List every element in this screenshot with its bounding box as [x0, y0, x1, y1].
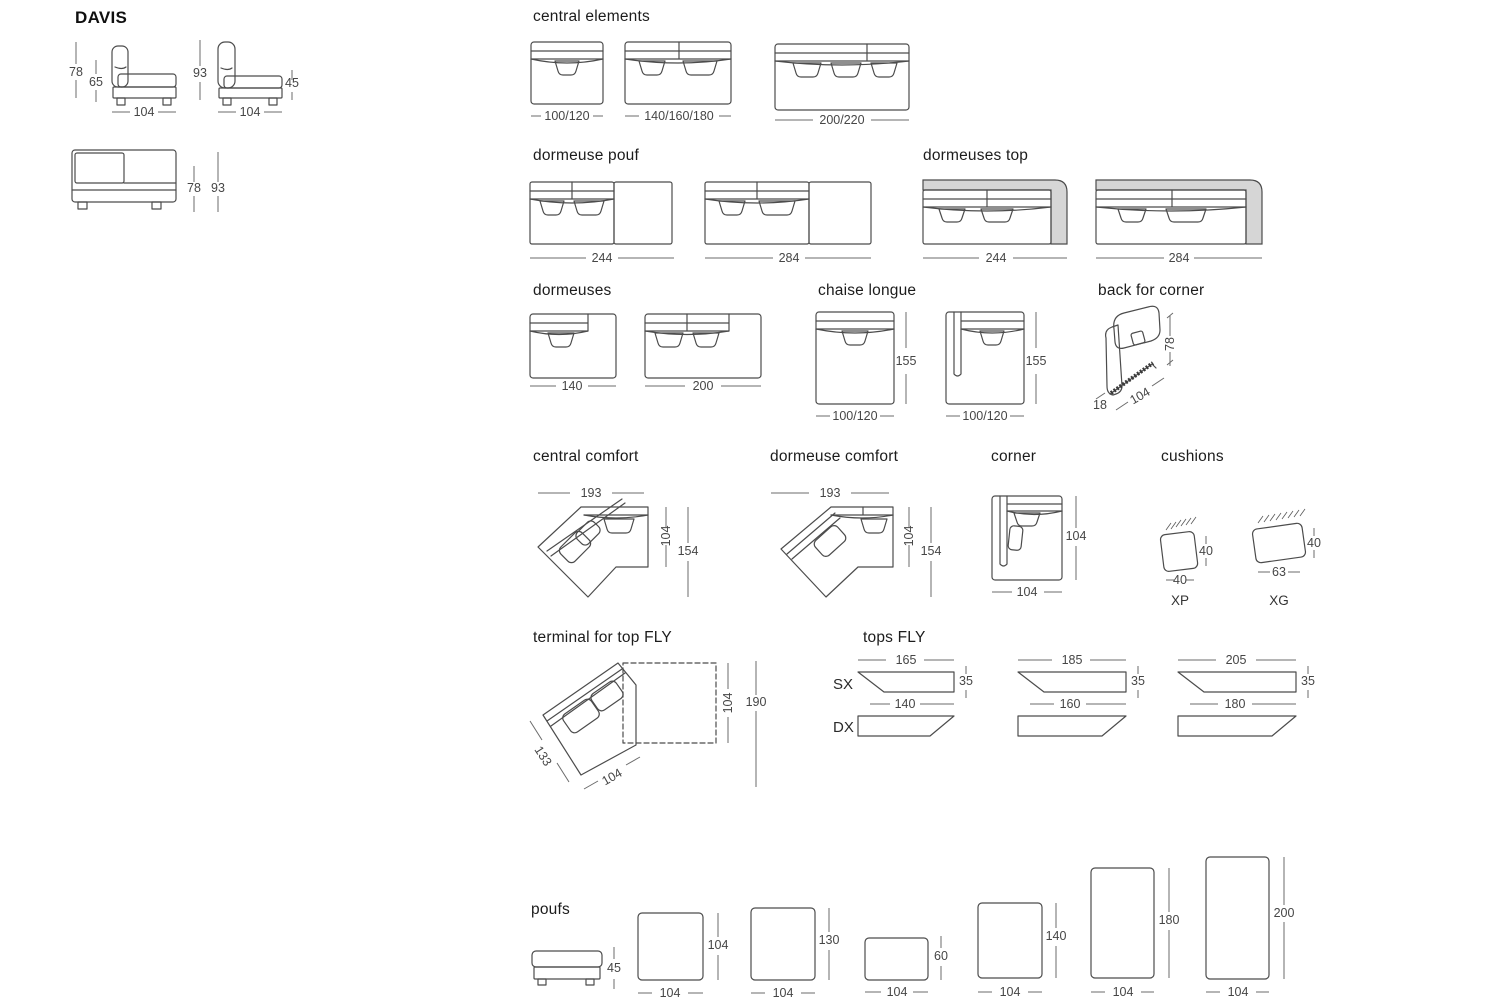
top-sx-outline — [1018, 672, 1126, 692]
dim-label: 100/120 — [832, 409, 877, 423]
dim-label: 104 — [660, 986, 681, 1000]
sofa-side-outline — [218, 42, 282, 105]
dim-label: 180 — [1159, 913, 1180, 927]
drawing-pouf-1: 104 104 — [630, 905, 735, 1003]
dim-label: 45 — [607, 961, 621, 975]
dim-label: 185 — [1062, 653, 1083, 667]
pouf-outline — [1091, 868, 1154, 978]
drawing-back-for-corner: 78 18 104 — [1088, 302, 1183, 417]
dim-label: 104 — [708, 938, 729, 952]
drawing-pouf-6: 200 104 — [1198, 850, 1303, 1000]
dim-label: 18 — [1093, 398, 1107, 412]
drawing-module-front-view: 78 93 — [66, 144, 241, 220]
dim-label: 104 — [659, 526, 673, 547]
cushion-hatch — [1166, 517, 1196, 530]
section-title-chaise-longue: chaise longue — [818, 282, 916, 300]
drawing-dormeuse-top-1: 244 — [921, 178, 1071, 268]
top-dx-outline — [1178, 716, 1296, 736]
drawing-chaise-longue-2: 155 100/120 — [938, 308, 1056, 426]
dim-label: 104 — [134, 105, 155, 119]
dim-label: 100/120 — [962, 409, 1007, 423]
drawing-dormeuse-2: 200 — [643, 310, 765, 394]
section-title-tops-fly: tops FLY — [863, 629, 925, 647]
dim-label: 45 — [285, 76, 299, 90]
drawing-tops-fly-3: 205 35 180 — [1176, 648, 1336, 748]
dim-label: 104 — [1066, 529, 1087, 543]
drawing-pouf-5: 180 104 — [1083, 862, 1188, 1002]
dim-label: 130 — [819, 933, 840, 947]
dim-label: 63 — [1272, 565, 1286, 579]
drawing-central-element-1: 100/120 — [529, 38, 607, 126]
spec-sheet: DAVIS 78 65 104 — [0, 0, 1504, 1003]
sofa-front-outline — [72, 150, 176, 209]
drawing-pouf-3: 60 104 — [857, 930, 962, 1003]
module-outline — [625, 42, 731, 104]
dim-label: 154 — [678, 544, 699, 558]
module-outline — [538, 499, 648, 597]
section-title-dormeuse-comfort: dormeuse comfort — [770, 448, 898, 466]
section-title-cushions: cushions — [1161, 448, 1224, 466]
top-dx-outline — [858, 716, 954, 736]
drawing-cushion-xg: 40 63 XG — [1250, 506, 1326, 612]
dim-label: 104 — [721, 693, 735, 714]
section-title-central-elements: central elements — [533, 8, 650, 26]
dim-label: 104 — [1017, 585, 1038, 599]
dim-label: 140 — [895, 697, 916, 711]
cushion-outline — [1160, 531, 1198, 572]
dim-label: 78 — [187, 181, 201, 195]
top-sx-outline — [1178, 672, 1296, 692]
drawing-central-element-3: 200/220 — [773, 42, 913, 128]
label-dx: DX — [833, 719, 854, 736]
pouf-outline — [865, 938, 928, 980]
module-outline — [530, 314, 616, 378]
module-outline — [531, 42, 603, 104]
dim-label: 104 — [1000, 985, 1021, 999]
drawing-central-comfort: 193 104 154 — [526, 483, 704, 611]
dim-label: 193 — [581, 486, 602, 500]
dim-label: 190 — [746, 695, 767, 709]
dim-label: 200 — [1274, 906, 1295, 920]
dim-label: 140/160/180 — [644, 109, 714, 123]
dim-label: 140 — [562, 379, 583, 393]
cushion-code: XG — [1269, 593, 1289, 608]
dim-label: 284 — [779, 251, 800, 265]
dim-label: 35 — [1131, 674, 1145, 688]
dim-label: 165 — [896, 653, 917, 667]
module-outline — [543, 663, 636, 775]
dim-label: 40 — [1307, 536, 1321, 550]
section-title-back-for-corner: back for corner — [1098, 282, 1204, 300]
dim-label: 78 — [69, 65, 83, 79]
dim-label: 104 — [599, 766, 624, 789]
drawing-cushion-xp: 40 40 XP — [1156, 516, 1222, 612]
dim-label: 155 — [896, 354, 917, 368]
module-outline — [781, 507, 893, 597]
module-outline — [530, 182, 672, 244]
dim-label: 93 — [211, 181, 225, 195]
section-title-dormeuses: dormeuses — [533, 282, 611, 300]
dim-label: 244 — [986, 251, 1007, 265]
dim-label: 100/120 — [544, 109, 589, 123]
dim-label: 104 — [1228, 985, 1249, 999]
section-title-dormeuses-top: dormeuses top — [923, 147, 1028, 165]
section-title-dormeuse-pouf: dormeuse pouf — [533, 147, 639, 165]
drawing-module-side-view: 78 65 104 — [66, 34, 191, 118]
module-outline — [816, 312, 894, 404]
dim-label: 104 — [902, 526, 916, 547]
drawing-tops-fly-2: 185 35 160 — [1016, 648, 1166, 748]
dim-label: 154 — [921, 544, 942, 558]
dim-label: 140 — [1046, 929, 1067, 943]
dim-label: 40 — [1199, 544, 1213, 558]
module-outline — [992, 496, 1062, 580]
top-extension-dashed — [623, 663, 716, 743]
dim-label: 193 — [820, 486, 841, 500]
dim-label: 180 — [1225, 697, 1246, 711]
dim-label: 160 — [1060, 697, 1081, 711]
dim-label: 93 — [193, 66, 207, 80]
dim-label: 104 — [1113, 985, 1134, 999]
dim-label: 35 — [959, 674, 973, 688]
module-outline — [705, 182, 871, 244]
page-title: DAVIS — [75, 8, 127, 28]
back-cushion-outline — [1106, 306, 1160, 395]
drawing-dormeuse-pouf-2: 284 — [703, 178, 875, 268]
dim-label: 35 — [1301, 674, 1315, 688]
drawing-tops-fly-1: 165 35 140 — [856, 648, 996, 748]
sofa-side-outline — [112, 46, 176, 105]
top-dx-outline — [1018, 716, 1126, 736]
dim-label: 104 — [1127, 385, 1152, 408]
drawing-dormeuse-1: 140 — [528, 310, 620, 394]
drawing-pouf-2: 130 104 — [743, 898, 848, 1003]
dim-label: 104 — [887, 985, 908, 999]
drawing-pouf-side-view: 45 — [528, 943, 623, 998]
dim-label: 65 — [89, 75, 103, 89]
dim-label: 284 — [1169, 251, 1190, 265]
drawing-dormeuse-comfort: 193 104 154 — [763, 483, 945, 611]
cushion-outline — [1252, 523, 1306, 564]
drawing-corner: 104 104 — [988, 490, 1100, 602]
pouf-outline — [978, 903, 1042, 978]
dim-label: 78 — [1163, 337, 1177, 351]
pouf-outline — [532, 951, 602, 985]
top-sx-outline — [858, 672, 954, 692]
dim-label: 155 — [1026, 354, 1047, 368]
module-outline — [923, 190, 1051, 244]
section-title-poufs: poufs — [531, 901, 570, 919]
dim-label: 205 — [1226, 653, 1247, 667]
pouf-outline — [1206, 857, 1269, 979]
dim-label: 40 — [1173, 573, 1187, 587]
drawing-terminal-top-fly: 133 104 104 190 — [526, 653, 784, 811]
drawing-dormeuse-top-2: 284 — [1094, 178, 1266, 268]
pouf-outline — [751, 908, 815, 980]
label-sx: SX — [833, 676, 853, 693]
drawing-module-side-view-high: 93 45 104 — [190, 34, 302, 118]
drawing-central-element-2: 140/160/180 — [623, 38, 735, 126]
module-outline — [775, 44, 909, 110]
dim-label: 244 — [592, 251, 613, 265]
section-title-corner: corner — [991, 448, 1036, 466]
pouf-outline — [638, 913, 703, 980]
cushion-code: XP — [1171, 593, 1189, 608]
module-outline — [1096, 190, 1246, 244]
dim-label: 60 — [934, 949, 948, 963]
cushion-hatch — [1258, 509, 1305, 523]
section-title-central-comfort: central comfort — [533, 448, 639, 466]
dim-label: 133 — [531, 743, 554, 768]
drawing-chaise-longue-1: 155 100/120 — [814, 308, 926, 426]
dim-label: 200 — [693, 379, 714, 393]
module-outline — [946, 312, 1024, 404]
dim-label: 104 — [773, 986, 794, 1000]
module-outline — [645, 314, 761, 378]
dim-label: 200/220 — [819, 113, 864, 127]
section-title-terminal-top-fly: terminal for top FLY — [533, 629, 672, 647]
drawing-dormeuse-pouf-1: 244 — [528, 178, 676, 268]
drawing-pouf-4: 140 104 — [970, 896, 1075, 1003]
dim-label: 104 — [240, 105, 261, 119]
